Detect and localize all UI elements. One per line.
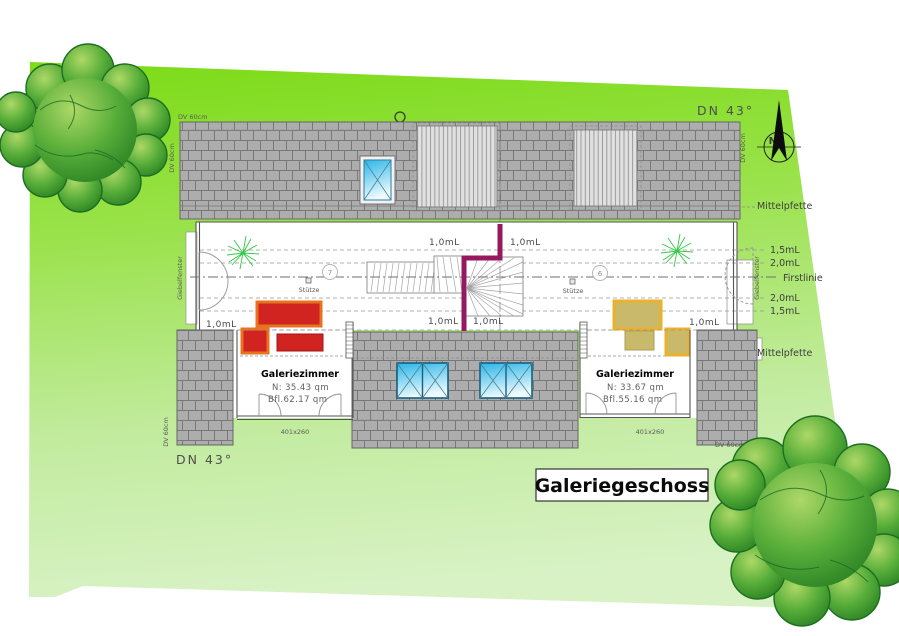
column-label-right: Stütze	[563, 287, 584, 295]
lower-roof-left	[177, 330, 233, 445]
ml-label-bottom-right: 1,0mL	[473, 317, 504, 327]
room-right-floor-area: Bfl.55.16 qm	[603, 395, 662, 405]
sofa-left	[257, 302, 321, 326]
lower-dormer-roof	[352, 332, 578, 448]
column-label-left: Stütze	[299, 286, 320, 294]
ml-label-top-left: 1,0mL	[429, 238, 460, 248]
position-number-left: 7	[328, 269, 332, 277]
ml-label-left: 1,0mL	[206, 320, 237, 330]
ml-label-top-right: 1,0mL	[510, 238, 541, 248]
dn-bottom-left-label: DN 43°	[176, 452, 233, 467]
dormer-panel-right	[574, 130, 637, 206]
position-number-right: 6	[598, 270, 603, 278]
armchair-right	[666, 329, 689, 355]
dv-bottom-left-v-label: DV 60cm	[162, 417, 170, 447]
floor-plan-page: 7 6 Stütze Stütze	[0, 0, 899, 636]
page-title: Galeriegeschoss	[535, 475, 710, 497]
ml-label-bottom-left: 1,0mL	[428, 317, 459, 327]
level-label-4: 1,5mL	[770, 306, 800, 317]
giebelfenster-left-label: Giebelfenster	[176, 256, 184, 300]
right-gable-bay	[727, 260, 753, 324]
level-label-3: 2,0mL	[770, 293, 800, 304]
firstlinie-label: Firstlinie	[783, 273, 823, 284]
ml-label-right: 1,0mL	[689, 318, 720, 328]
level-label-2: 2,0mL	[770, 258, 800, 269]
table-right	[625, 331, 654, 350]
dormer-skylight-left	[397, 363, 448, 398]
giebelfenster-right-label: Giebelfenster	[753, 256, 761, 300]
dormer-panel-left	[417, 126, 497, 207]
armchair-left	[242, 329, 268, 353]
room-left-floor-area: Bfl.62.17 qm	[268, 395, 327, 405]
room-right-name: Galeriezimmer	[596, 369, 674, 380]
room-left-name: Galeriezimmer	[261, 369, 339, 380]
level-label-1: 1,5mL	[770, 245, 800, 256]
dv-top-right-v-label: DV 60cm	[739, 133, 747, 163]
dv-top-left-v-label: DV 60cm	[168, 143, 176, 173]
lower-roof-right	[697, 330, 757, 445]
dormer-skylight-right	[480, 363, 532, 398]
site-plan-drawing: 7 6 Stütze Stütze	[0, 0, 899, 636]
upper-roof	[180, 122, 740, 219]
title-box: Galeriegeschoss	[535, 469, 710, 501]
window-size-right: 401x260	[636, 428, 665, 436]
position-marker-left: 7	[323, 265, 338, 280]
mittelpfette-top-label: Mittelpfette	[757, 201, 812, 212]
room-left-net-area: N: 35.43 qm	[272, 383, 329, 393]
left-gable-bay	[186, 232, 197, 324]
sofa-right	[614, 301, 661, 329]
dn-top-right-label: DN 43°	[697, 103, 754, 118]
table-left	[277, 334, 323, 351]
position-marker-right: 6	[593, 266, 608, 281]
roof-skylight	[360, 156, 395, 204]
mittelpfette-bottom-label: Mittelpfette	[757, 348, 812, 359]
dv-top-left-h-label: DV 60cm	[178, 113, 208, 121]
window-size-left: 401x260	[281, 428, 310, 436]
room-right-net-area: N: 33.67 qm	[607, 383, 664, 393]
